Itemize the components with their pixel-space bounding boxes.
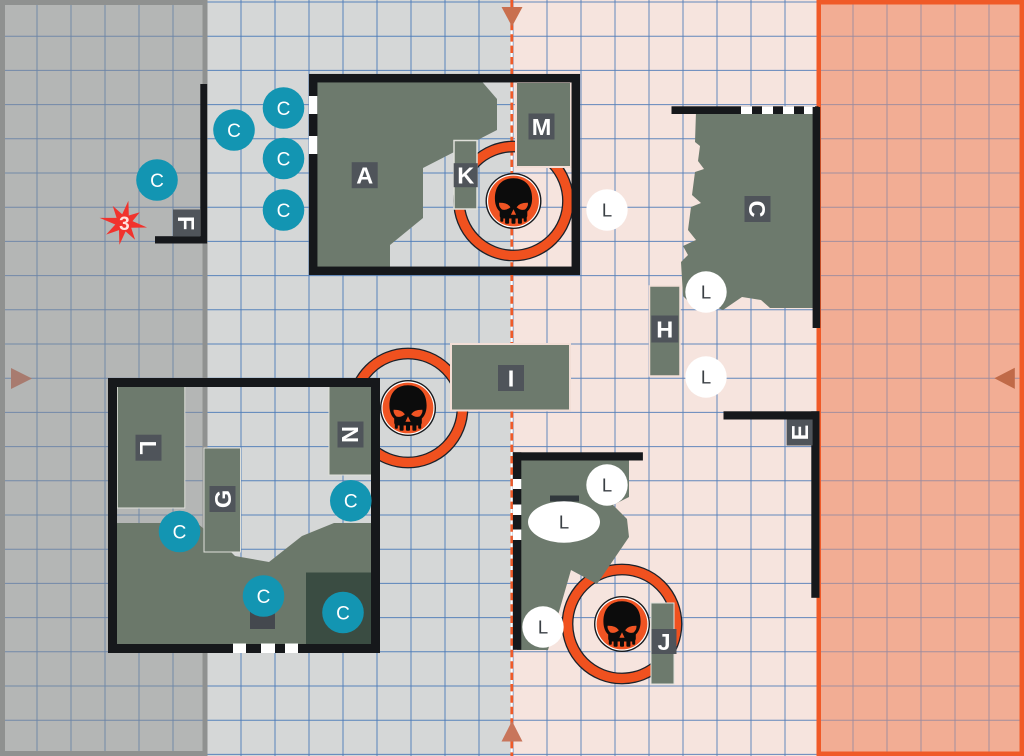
svg-text:F: F (173, 216, 199, 230)
svg-text:N: N (337, 426, 363, 443)
svg-text:C: C (336, 603, 350, 624)
svg-text:C: C (277, 99, 291, 120)
svg-text:E: E (787, 425, 813, 441)
svg-text:C: C (173, 522, 187, 543)
svg-text:K: K (457, 163, 474, 189)
svg-text:3: 3 (119, 214, 130, 235)
svg-text:I: I (508, 365, 515, 391)
svg-text:C: C (277, 149, 291, 170)
svg-text:L: L (701, 367, 711, 388)
svg-text:H: H (656, 316, 673, 342)
svg-text:C: C (227, 121, 241, 142)
svg-text:L: L (135, 441, 161, 455)
svg-text:L: L (538, 617, 548, 638)
svg-text:J: J (657, 629, 670, 655)
svg-text:M: M (532, 114, 552, 140)
svg-text:L: L (559, 512, 569, 533)
svg-text:L: L (602, 475, 612, 496)
svg-text:C: C (344, 492, 358, 513)
svg-text:C: C (744, 201, 770, 218)
svg-text:A: A (356, 163, 373, 189)
svg-text:C: C (257, 587, 271, 608)
svg-text:G: G (210, 490, 236, 508)
svg-text:C: C (150, 171, 164, 192)
svg-text:L: L (602, 200, 612, 221)
svg-text:L: L (701, 282, 711, 303)
svg-text:C: C (277, 201, 291, 222)
